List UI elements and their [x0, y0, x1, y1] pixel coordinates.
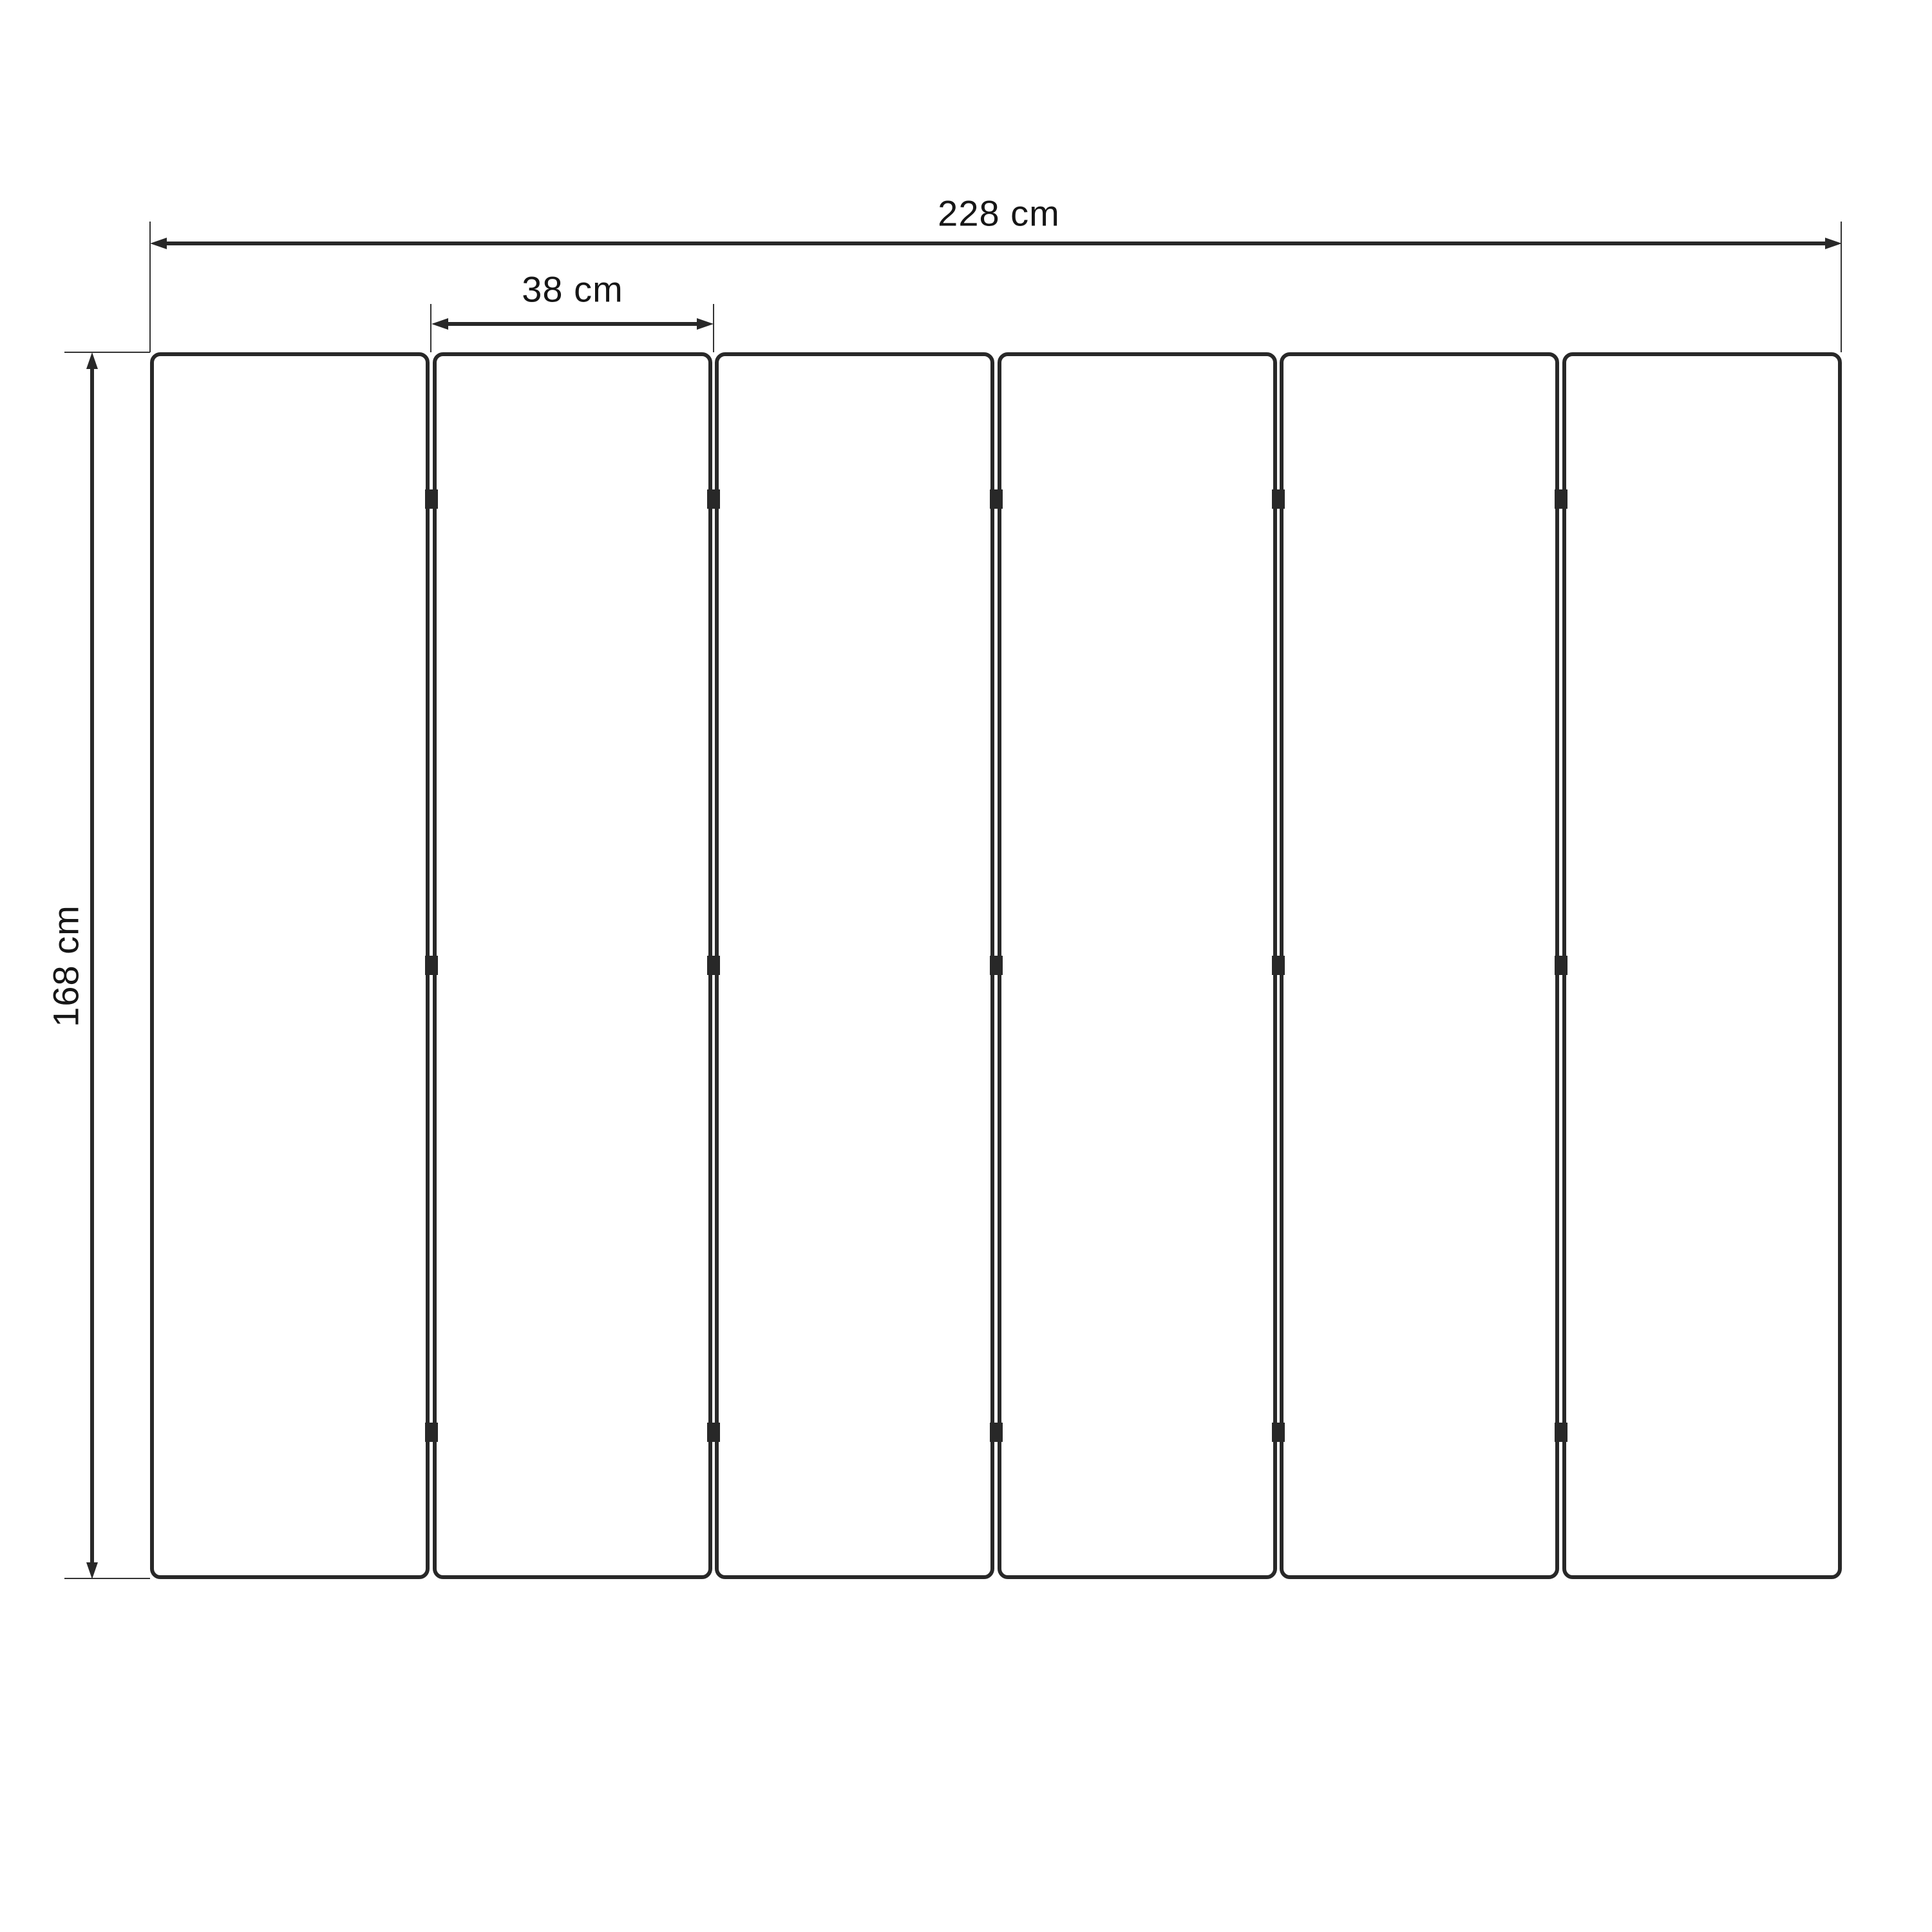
- arrowhead-left-icon: [150, 238, 167, 249]
- panel-width-label: 38 cm: [522, 269, 623, 310]
- hinge: [425, 1423, 438, 1442]
- hinge: [990, 956, 1003, 975]
- height-extension-line-bottom: [64, 1578, 150, 1579]
- dimension-diagram: 228 cm 38 cm 168 cm: [0, 0, 1932, 1932]
- hinge: [425, 956, 438, 975]
- arrowhead-down-icon: [86, 1562, 98, 1579]
- hinge: [1555, 956, 1567, 975]
- hinge: [707, 956, 720, 975]
- panel-4: [998, 352, 1277, 1579]
- hinge: [707, 489, 720, 509]
- panel-5: [1280, 352, 1559, 1579]
- height-label: 168 cm: [45, 905, 87, 1027]
- hinge: [1272, 956, 1285, 975]
- hinge: [1272, 489, 1285, 509]
- hinge: [1555, 1423, 1567, 1442]
- panel-width-dimension-line: [446, 322, 698, 326]
- total-width-label: 228 cm: [938, 193, 1060, 234]
- panel-2: [433, 352, 712, 1579]
- panel-1: [150, 352, 430, 1579]
- hinge: [990, 1423, 1003, 1442]
- hinge: [1272, 1423, 1285, 1442]
- arrowhead-right-icon: [1825, 238, 1842, 249]
- height-extension-line-top: [64, 352, 150, 353]
- hinge: [990, 489, 1003, 509]
- total-width-dimension-line: [165, 241, 1826, 245]
- arrowhead-right-icon: [697, 318, 714, 330]
- hinge: [425, 489, 438, 509]
- height-dimension-line: [90, 367, 94, 1564]
- panel-6: [1562, 352, 1842, 1579]
- panel-3: [715, 352, 994, 1579]
- arrowhead-up-icon: [86, 352, 98, 369]
- arrowhead-left-icon: [431, 318, 448, 330]
- hinge: [707, 1423, 720, 1442]
- hinge: [1555, 489, 1567, 509]
